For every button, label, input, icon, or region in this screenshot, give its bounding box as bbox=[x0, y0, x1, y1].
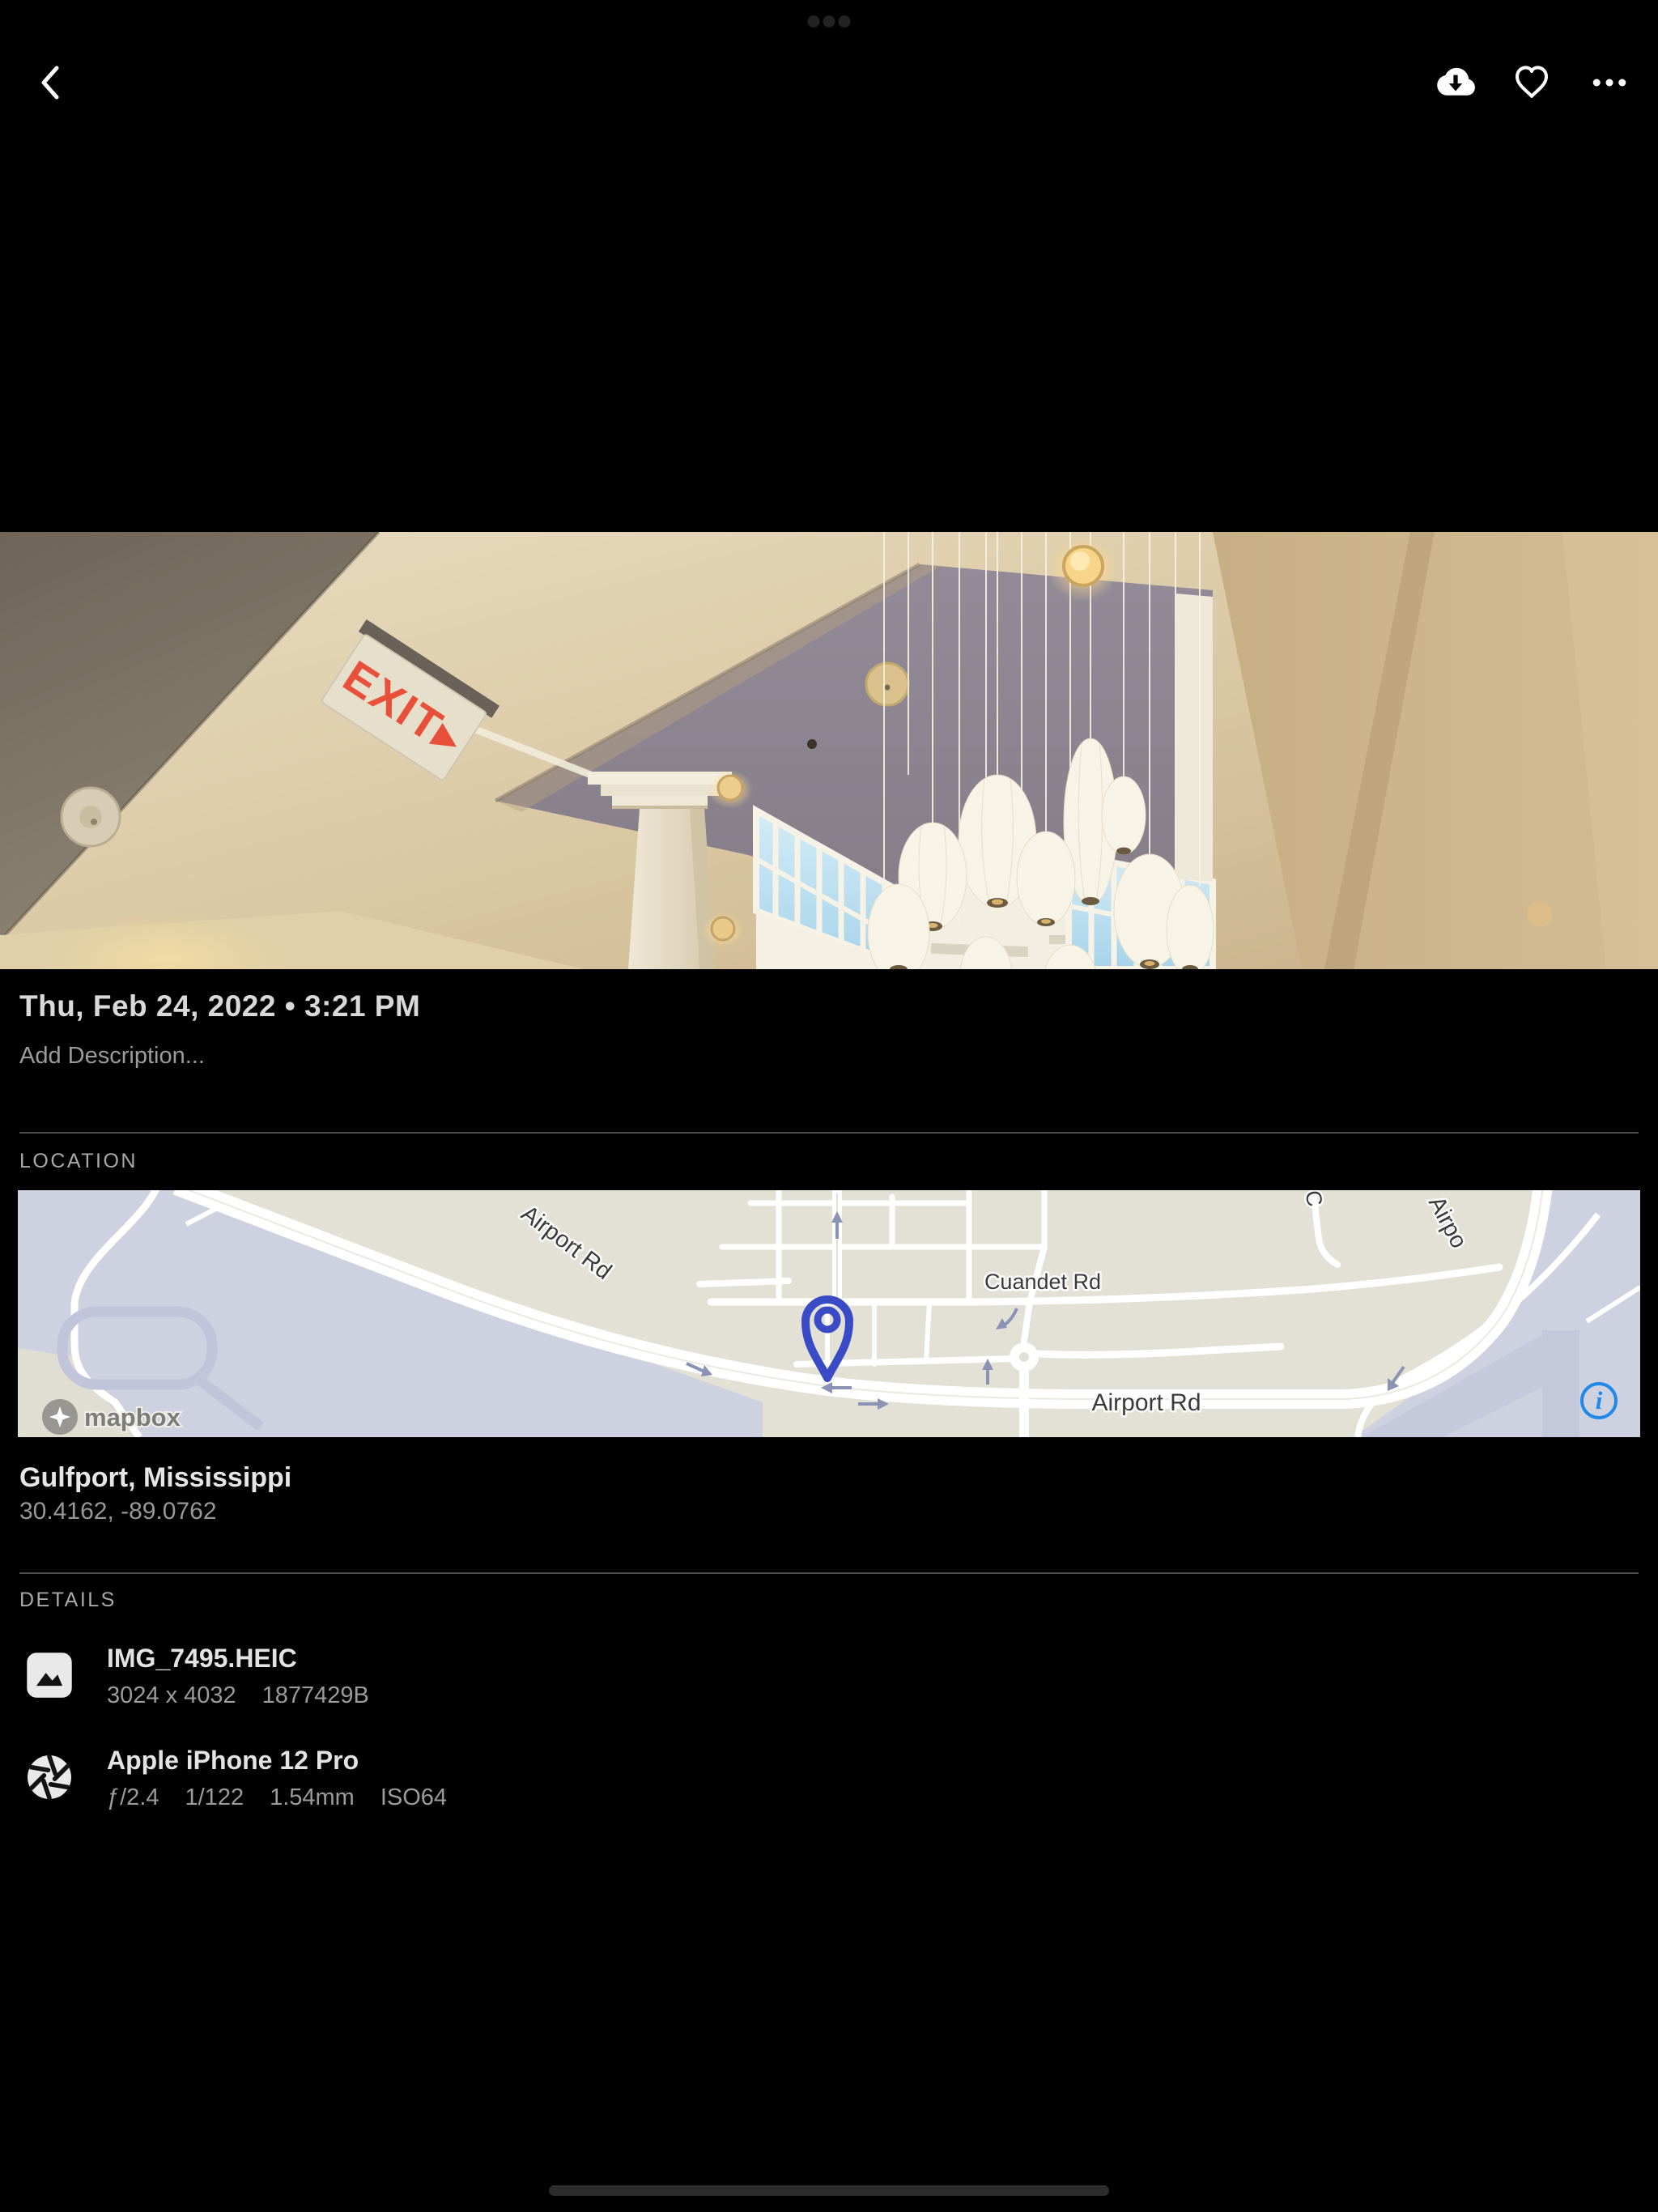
camera-focal-length: 1.54mm bbox=[270, 1784, 355, 1810]
asset-viewer-screen: EXIT▸ bbox=[0, 0, 1658, 2212]
mapbox-logo: mapbox bbox=[42, 1399, 181, 1435]
multitask-dot bbox=[808, 15, 820, 28]
aperture-icon bbox=[21, 1749, 78, 1806]
smoke-detector bbox=[62, 788, 120, 846]
location-place: Gulfport, Mississippi bbox=[19, 1462, 291, 1494]
map-label-cuandet: Cuandet Rd bbox=[984, 1270, 1101, 1294]
heart-icon bbox=[1510, 61, 1554, 104]
file-name: IMG_7495.HEIC bbox=[107, 1644, 297, 1674]
map-info-glyph: i bbox=[1596, 1386, 1603, 1414]
multitask-indicator[interactable] bbox=[808, 15, 851, 28]
location-map[interactable]: Cuandet Rd Airport Rd Airport Rd Airpo C… bbox=[18, 1190, 1640, 1437]
home-indicator[interactable] bbox=[549, 2185, 1109, 2196]
file-meta: 3024 x 40321877429B bbox=[107, 1682, 395, 1709]
mapbox-logo-text: mapbox bbox=[84, 1403, 181, 1431]
toolbar bbox=[0, 57, 1658, 113]
location-header: LOCATION bbox=[19, 1150, 138, 1173]
camera-iso: ISO64 bbox=[380, 1784, 447, 1810]
camera-meta: ƒ/2.41/1221.54mmISO64 bbox=[107, 1784, 473, 1811]
more-options-button[interactable] bbox=[1584, 57, 1635, 108]
download-button[interactable] bbox=[1430, 57, 1482, 108]
favorite-button[interactable] bbox=[1506, 57, 1558, 108]
back-button[interactable] bbox=[26, 57, 78, 108]
camera-model: Apple iPhone 12 Pro bbox=[107, 1746, 359, 1776]
camera-aperture: ƒ/2.4 bbox=[107, 1784, 159, 1810]
cloud-download-icon bbox=[1433, 60, 1478, 105]
photo-rendering: EXIT▸ bbox=[0, 532, 1658, 969]
divider bbox=[19, 1132, 1639, 1134]
map-roundabout bbox=[1010, 1342, 1039, 1372]
back-chevron-icon bbox=[29, 60, 74, 105]
file-dimensions: 3024 x 4032 bbox=[107, 1682, 236, 1708]
details-header: DETAILS bbox=[19, 1589, 117, 1612]
ellipsis-icon bbox=[1588, 61, 1631, 104]
multitask-dot bbox=[823, 15, 835, 28]
photo-pilaster bbox=[1175, 593, 1213, 882]
description-input[interactable] bbox=[19, 1043, 1153, 1070]
location-coordinates: 30.4162, -89.0762 bbox=[19, 1498, 217, 1525]
map-rendering: Cuandet Rd Airport Rd Airport Rd Airpo C… bbox=[18, 1190, 1640, 1437]
map-label-airport-horizontal: Airport Rd bbox=[1091, 1389, 1201, 1416]
camera-shutter: 1/122 bbox=[185, 1784, 244, 1810]
date-row[interactable]: Thu, Feb 24, 2022 • 3:21 PM bbox=[19, 989, 420, 1023]
photo[interactable]: EXIT▸ bbox=[0, 532, 1658, 969]
multitask-dot bbox=[839, 15, 851, 28]
file-size: 1877429B bbox=[262, 1682, 369, 1708]
divider bbox=[19, 1572, 1639, 1574]
image-icon bbox=[21, 1647, 78, 1704]
